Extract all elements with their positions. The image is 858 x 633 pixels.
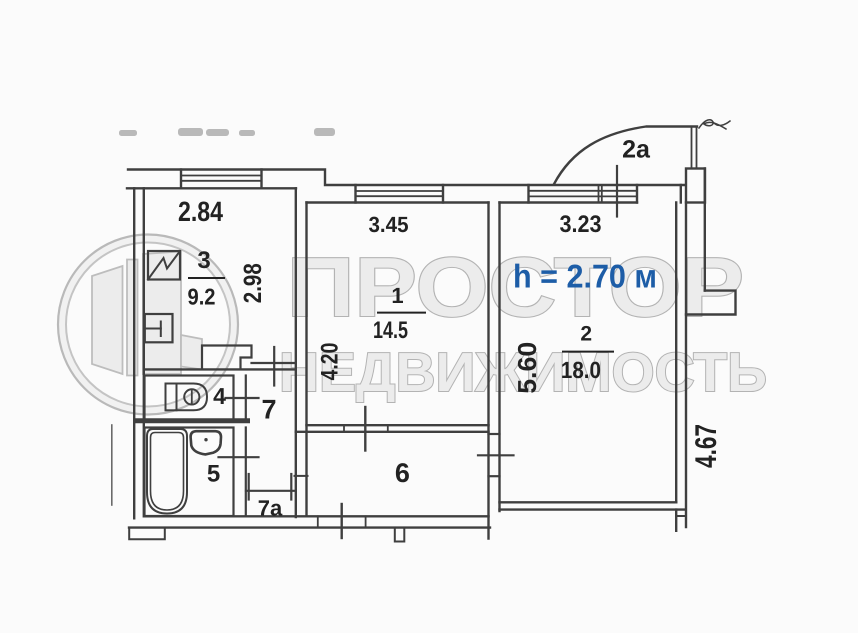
svg-text:2: 2 [580, 323, 592, 346]
svg-text:7a: 7a [258, 496, 283, 521]
svg-text:h = 2.70 м: h = 2.70 м [513, 258, 657, 295]
svg-text:3: 3 [197, 247, 210, 274]
svg-text:18.0: 18.0 [561, 357, 601, 383]
svg-text:5.60: 5.60 [512, 342, 542, 394]
svg-text:3.23: 3.23 [560, 211, 602, 238]
svg-text:4.20: 4.20 [317, 343, 344, 381]
svg-text:9.2: 9.2 [188, 284, 216, 310]
svg-text:4: 4 [213, 383, 226, 409]
svg-text:7: 7 [261, 395, 276, 425]
svg-text:2.84: 2.84 [178, 196, 223, 227]
svg-text:5: 5 [207, 461, 220, 488]
svg-text:1: 1 [391, 283, 403, 308]
svg-text:14.5: 14.5 [373, 317, 408, 344]
svg-text:4.67: 4.67 [690, 424, 723, 468]
svg-text:2a: 2a [622, 136, 651, 164]
svg-text:3.45: 3.45 [369, 212, 409, 237]
svg-text:2.98: 2.98 [239, 263, 267, 303]
svg-text:6: 6 [395, 458, 410, 488]
